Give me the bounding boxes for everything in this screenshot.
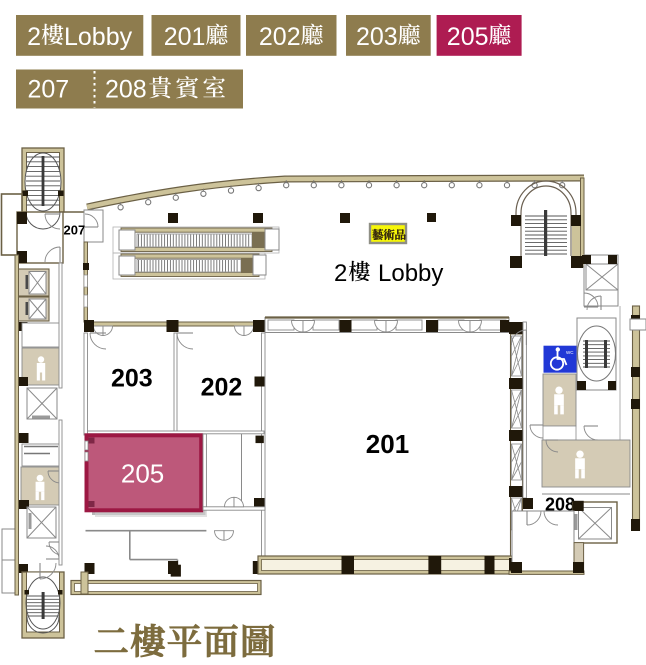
svg-text:203: 203 [111, 364, 153, 392]
svg-text:202: 202 [201, 373, 243, 401]
svg-text:Lobby: Lobby [378, 260, 443, 287]
svg-text:2: 2 [334, 260, 347, 287]
svg-text:205: 205 [447, 23, 489, 51]
svg-text:208: 208 [105, 75, 147, 103]
svg-text:WC: WC [566, 350, 574, 355]
svg-text:207: 207 [28, 75, 70, 103]
svg-text:201: 201 [366, 429, 409, 459]
svg-text:201: 201 [164, 23, 206, 51]
svg-text:203: 203 [356, 23, 398, 51]
svg-text:202: 202 [259, 23, 301, 51]
svg-text:2: 2 [27, 23, 41, 51]
svg-text:Lobby: Lobby [64, 23, 133, 51]
svg-text:207: 207 [64, 223, 86, 238]
svg-text:205: 205 [121, 458, 164, 488]
